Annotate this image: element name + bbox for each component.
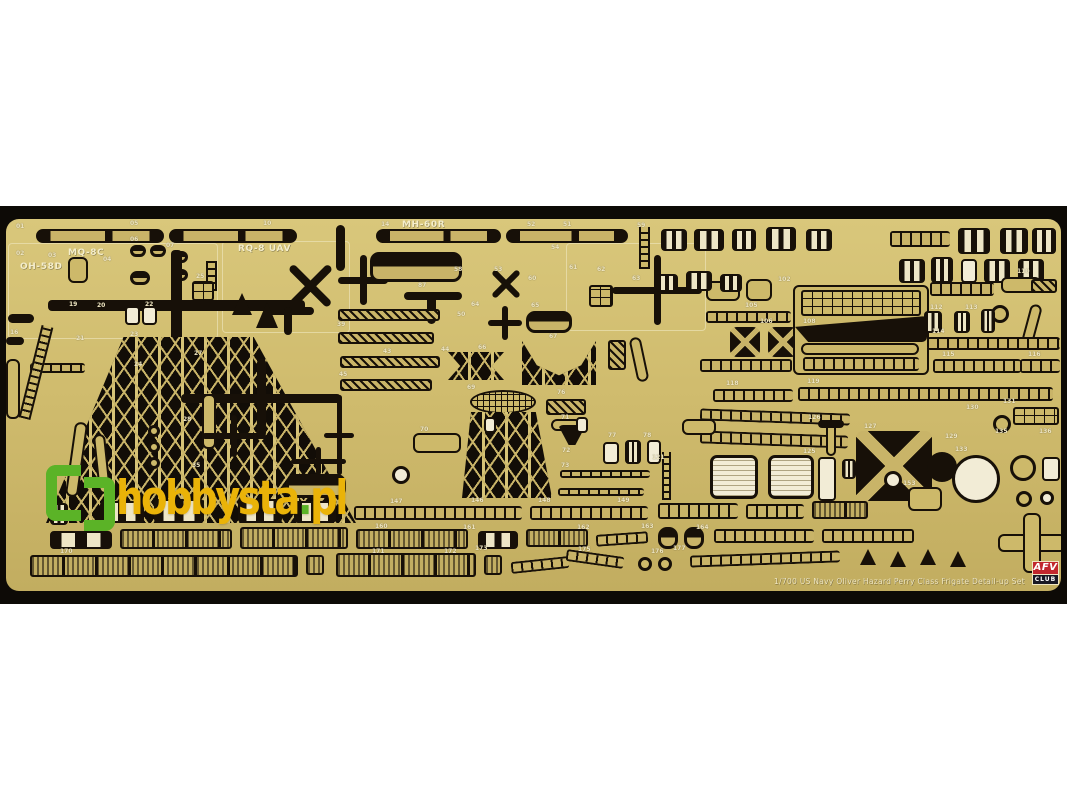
part-number: 03 <box>48 253 56 259</box>
part-number: 153 <box>903 481 916 487</box>
fret-part-railing <box>803 357 919 371</box>
fret-part-hull <box>526 311 572 333</box>
part-number: 127 <box>864 424 877 430</box>
bracket-right-icon <box>84 477 115 531</box>
part-number: 59 <box>637 223 645 229</box>
fret-label: MQ-8C <box>68 249 104 258</box>
afv-club-logo: AFV CLUB <box>1032 561 1059 585</box>
fret-part-tanbar <box>801 343 919 355</box>
fret-part-deckstrip <box>30 555 298 577</box>
fret-part-railing <box>930 282 994 296</box>
fret-part-blade <box>36 229 164 243</box>
part-number: 126 <box>808 415 821 421</box>
fret-part-whitebox <box>961 259 977 283</box>
fret-part-box <box>656 274 678 292</box>
part-number: 112 <box>930 305 943 311</box>
fret-part-grid <box>589 285 613 307</box>
fret-part-railing <box>706 311 791 323</box>
part-number: 25 <box>196 274 204 280</box>
part-number: 176 <box>651 549 664 555</box>
part-number: 67 <box>549 334 557 340</box>
fret-part-box <box>931 257 953 283</box>
part-number: 146 <box>471 498 484 504</box>
fret-part-tanbar <box>628 336 649 383</box>
fret-part-tanbar <box>413 433 461 453</box>
fret-part-whitebox <box>484 417 496 433</box>
fret-part-tanbar <box>908 487 942 511</box>
fret-part-whitebox <box>1042 457 1060 481</box>
part-number: 78 <box>643 433 651 439</box>
part-number: 172 <box>444 549 457 555</box>
part-number: 43 <box>383 349 391 355</box>
part-number: 115 <box>942 352 955 358</box>
fret-part-railing <box>746 504 804 519</box>
fret-part-box <box>981 309 995 333</box>
part-number: 05 <box>130 221 138 227</box>
fret-part-cross <box>202 415 266 457</box>
fret-part-ring <box>148 441 160 453</box>
bracket-left-icon <box>46 465 81 521</box>
part-number: 116 <box>1028 352 1041 358</box>
fret-part-whitegrid <box>768 455 814 499</box>
part-number: 52 <box>527 222 535 228</box>
fret-part-deckstrip <box>306 555 324 575</box>
fret-part-mesh <box>522 341 596 385</box>
watermark-brackets-icon <box>46 465 116 531</box>
part-number: 87 <box>418 283 426 289</box>
part-number: 163 <box>641 524 654 530</box>
part-number: 105 <box>745 303 758 309</box>
part-number: 113 <box>965 305 978 311</box>
fret-part-railing <box>1020 359 1060 373</box>
fret-part-tanbar <box>6 359 20 419</box>
part-number: 23 <box>130 332 138 338</box>
part-number: 148 <box>538 498 551 504</box>
fret-part-railing <box>822 529 914 543</box>
product-photo: OH-58DMQ-8CRQ-8 UAVMH-60R010510145251590… <box>0 206 1067 604</box>
part-number: 27 <box>194 351 202 357</box>
part-number: 70 <box>420 427 428 433</box>
fret-label: RQ-8 UAV <box>238 245 291 254</box>
part-number: 06 <box>130 237 138 243</box>
fret-part-tanbar <box>746 279 772 301</box>
part-number: 108 <box>803 319 816 325</box>
fret-part-whitegrid <box>710 455 758 499</box>
fret-label: MH-60R <box>402 221 445 230</box>
fret-part-hatch <box>338 332 434 344</box>
part-number: 02 <box>16 251 24 257</box>
part-number: 162 <box>577 525 590 531</box>
fret-part-box <box>1032 228 1056 254</box>
watermark-dot: . <box>298 471 310 526</box>
part-number: 77 <box>608 433 616 439</box>
fret-part-box <box>625 440 641 464</box>
fret-part-grid <box>1013 407 1059 425</box>
part-number: 07 <box>166 243 174 249</box>
fret-part-hatch <box>338 309 440 321</box>
part-number: 161 <box>463 525 476 531</box>
fret-part-box <box>806 229 832 251</box>
part-number: 133 <box>955 447 968 453</box>
fret-part-blade <box>506 229 628 243</box>
part-number: 58 <box>454 267 462 273</box>
fret-part-whitecircle <box>1040 491 1054 505</box>
fret-part-bar <box>6 337 24 345</box>
fret-part-cross <box>481 259 532 310</box>
part-number: 73 <box>561 463 569 469</box>
fret-part-box <box>732 229 756 251</box>
part-number: 64 <box>471 302 479 308</box>
fret-part-bar <box>818 420 844 428</box>
fret-part-railing <box>558 488 644 496</box>
part-number: 61 <box>569 265 577 271</box>
fret-part-box <box>694 229 724 251</box>
fret-part-whitebox <box>603 442 619 464</box>
part-number: 14 <box>381 222 389 228</box>
fret-part-whitecircle <box>952 455 1000 503</box>
part-number: 118 <box>726 381 739 387</box>
part-number: 129 <box>945 434 958 440</box>
fret-part-blade <box>169 229 297 243</box>
part-number: 53 <box>494 267 502 273</box>
fret-part-railing <box>890 231 950 247</box>
fret-part-whitebox <box>818 457 836 501</box>
fret-part-ring <box>1010 455 1036 481</box>
fret-part-grid <box>801 290 921 316</box>
fret-part-wedge <box>950 551 966 567</box>
part-number: 24 <box>134 362 142 368</box>
fret-part-box <box>720 274 742 292</box>
fret-part-railing <box>530 506 648 520</box>
fret-part-wedge <box>890 551 906 567</box>
part-number: 04 <box>103 257 111 263</box>
part-number: 62 <box>597 267 605 273</box>
fret-part-railing <box>714 529 814 543</box>
part-number: 125 <box>803 449 816 455</box>
part-number: 19 <box>69 302 77 308</box>
part-number: 130 <box>966 405 979 411</box>
fret-part-box <box>958 228 990 254</box>
part-number: 131 <box>1003 399 1016 405</box>
fret-part-railing <box>927 337 1060 350</box>
part-number: 102 <box>778 277 791 283</box>
part-number: 177 <box>673 546 686 552</box>
fret-part-xbox <box>730 327 760 357</box>
fret-part-railing <box>560 470 650 478</box>
part-number: 60 <box>528 276 536 282</box>
part-number: 66 <box>478 345 486 351</box>
fret-part-hatch <box>546 399 586 415</box>
fret-part-hatch <box>340 379 432 391</box>
part-number: 149 <box>617 498 630 504</box>
part-number: 45 <box>339 372 347 378</box>
watermark-text: hobbysta.pl <box>116 471 346 526</box>
part-number: 170 <box>60 549 73 555</box>
fret-part-whitebox <box>576 417 588 433</box>
fret-part-ovalgrid <box>470 390 536 414</box>
fret-part-railing <box>565 549 624 569</box>
fret-part-wedge <box>920 549 936 565</box>
part-number: 63 <box>632 276 640 282</box>
part-number: 136 <box>1039 429 1052 435</box>
part-number: 71 <box>561 415 569 421</box>
fret-part-railing <box>511 556 570 574</box>
fret-part-railing <box>596 531 649 547</box>
part-number: 114 <box>932 329 945 335</box>
fret-part-railing <box>700 359 792 372</box>
part-number: 135 <box>995 429 1008 435</box>
part-number: 65 <box>531 303 539 309</box>
fret-part-whitebox <box>142 306 157 325</box>
fret-part-railing <box>713 389 793 402</box>
part-number: 173 <box>475 546 488 552</box>
afv-logo-bottom: CLUB <box>1032 574 1059 585</box>
fret-part-hatch <box>608 340 626 370</box>
fret-part-ring <box>638 557 652 571</box>
fret-part-bar <box>8 314 34 323</box>
fret-part-deckstrip <box>526 529 588 547</box>
part-number: 54 <box>551 245 559 251</box>
part-number: 28 <box>183 417 191 423</box>
fret-part-blade <box>376 229 501 243</box>
watermark: hobbysta.pl <box>46 458 396 538</box>
fret-part-ring <box>658 557 672 571</box>
part-number: 69 <box>467 385 475 391</box>
fret-part-railing <box>933 359 1021 373</box>
part-number: 175 <box>578 547 591 553</box>
part-number: 110 <box>1017 269 1030 275</box>
part-number: 106 <box>760 319 773 325</box>
fret-part-railing <box>658 503 738 519</box>
fret-part-deckstrip <box>484 555 502 575</box>
part-number: 16 <box>10 330 18 336</box>
watermark-tld: pl <box>310 471 346 526</box>
part-number: 21 <box>76 336 84 342</box>
fret-part-bar <box>284 307 292 335</box>
fret-part-box <box>686 271 712 291</box>
part-number: 44 <box>441 347 449 353</box>
part-number: 50 <box>457 312 465 318</box>
part-number: 76 <box>557 390 565 396</box>
fret-part-railing <box>690 550 840 567</box>
fret-label: OH-58D <box>20 263 63 272</box>
part-number: 72 <box>562 448 570 454</box>
part-number: 22 <box>145 302 153 308</box>
fret-part-mesh <box>448 352 504 380</box>
fret-caption: 1/700 US Navy Oliver Hazard Perry Class … <box>774 577 1025 586</box>
fret-part-box <box>954 311 970 333</box>
fret-part-fan <box>462 412 552 498</box>
fret-part-deckstrip <box>336 553 476 577</box>
fret-part-box <box>766 227 796 251</box>
fret-part-whitecircle <box>884 471 902 489</box>
fret-part-cross <box>488 306 522 340</box>
fret-part-whitebox <box>125 306 140 325</box>
watermark-name: hobbysta <box>116 471 298 526</box>
fret-part-box <box>1000 228 1028 254</box>
fret-part-tanbar <box>682 419 716 435</box>
part-number: 119 <box>807 379 820 385</box>
fret-part-box <box>899 259 925 283</box>
part-number: 01 <box>16 224 24 230</box>
fret-part-ring <box>1016 491 1032 507</box>
part-number: 20 <box>97 303 105 309</box>
part-number: 51 <box>563 222 571 228</box>
fret-part-hull <box>370 252 462 282</box>
product-image-page: OH-58DMQ-8CRQ-8 UAVMH-60R010510145251590… <box>0 0 1067 800</box>
fret-part-wedge <box>860 549 876 565</box>
part-number: 121 <box>652 455 665 461</box>
part-number: 164 <box>696 525 709 531</box>
fret-part-ring <box>148 425 160 437</box>
fret-part-hatch <box>1031 279 1057 293</box>
part-number: 10 <box>263 221 271 227</box>
fret-part-deckstrip <box>812 501 868 519</box>
fret-part-box <box>661 229 687 251</box>
part-number: 39 <box>337 322 345 328</box>
part-number: 171 <box>372 549 385 555</box>
fret-part-box <box>842 459 856 479</box>
afv-logo-top: AFV <box>1032 561 1059 574</box>
fret-part-hatch <box>340 356 440 368</box>
